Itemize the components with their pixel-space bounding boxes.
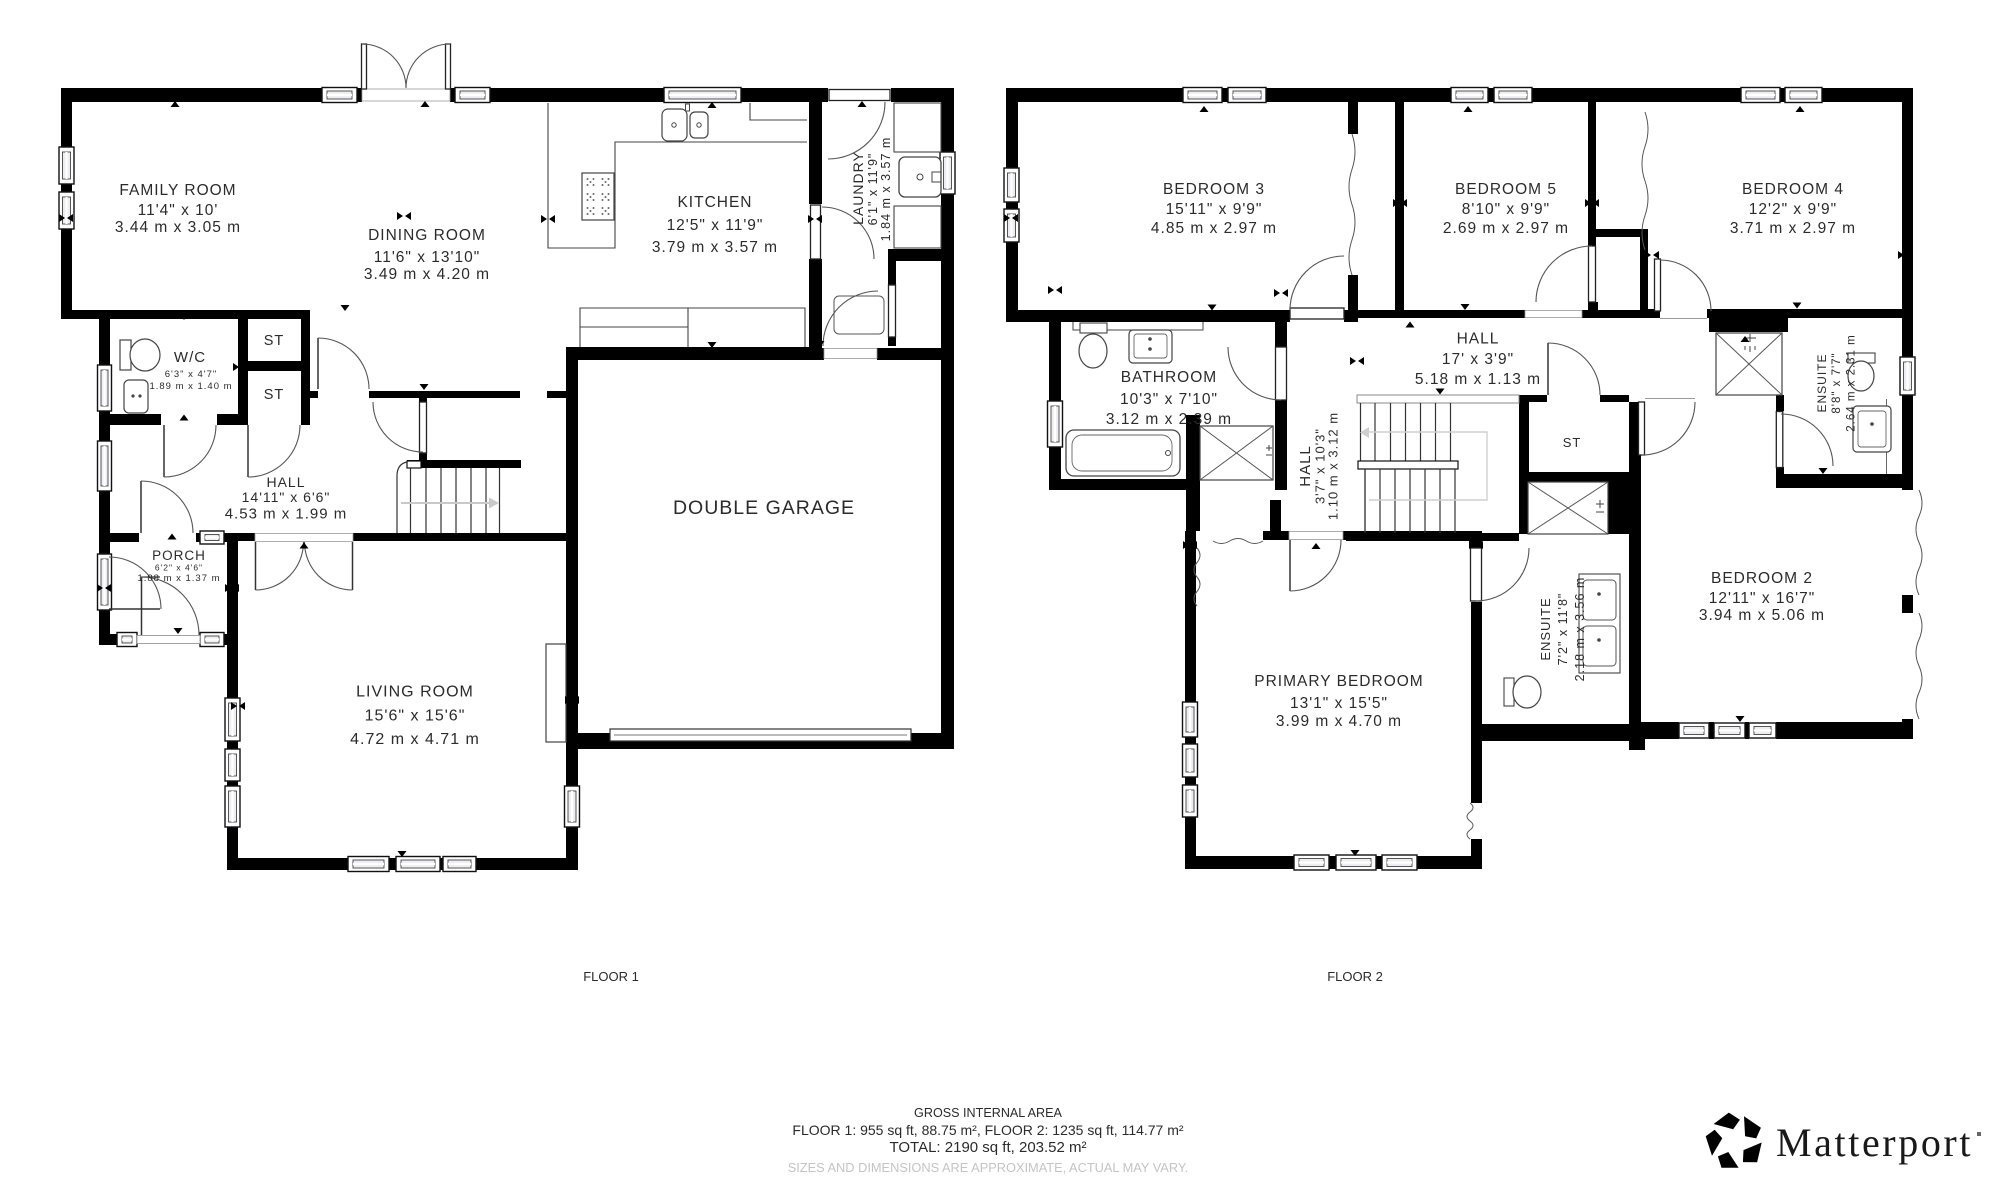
svg-text:5.18 m x 1.13 m: 5.18 m x 1.13 m — [1415, 371, 1541, 388]
svg-text:SIZES AND DIMENSIONS ARE APPRO: SIZES AND DIMENSIONS ARE APPROXIMATE, AC… — [788, 1160, 1189, 1175]
svg-text:6'1" x 11'9": 6'1" x 11'9" — [866, 153, 880, 226]
svg-text:BATHROOM: BATHROOM — [1121, 369, 1217, 386]
svg-text:10'3" x 7'10": 10'3" x 7'10" — [1120, 391, 1218, 408]
svg-text:LIVING ROOM: LIVING ROOM — [356, 684, 474, 701]
svg-text:HALL: HALL — [1297, 445, 1314, 487]
svg-text:W/C: W/C — [174, 349, 206, 366]
svg-text:HALL: HALL — [1457, 331, 1500, 348]
svg-text:BEDROOM 5: BEDROOM 5 — [1455, 181, 1557, 198]
svg-text:4.72 m x 4.71 m: 4.72 m x 4.71 m — [350, 731, 480, 748]
svg-text:KITCHEN: KITCHEN — [677, 194, 752, 211]
svg-text:1.89 m x 1.40 m: 1.89 m x 1.40 m — [149, 381, 232, 392]
svg-text:4.53 m x 1.99 m: 4.53 m x 1.99 m — [225, 506, 348, 523]
svg-text:15'11" x 9'9": 15'11" x 9'9" — [1166, 201, 1263, 218]
svg-text:ST: ST — [264, 387, 285, 403]
svg-text:13'1" x 15'5": 13'1" x 15'5" — [1290, 695, 1388, 712]
svg-text:BEDROOM 2: BEDROOM 2 — [1711, 570, 1813, 587]
svg-text:FLOOR 1: FLOOR 1 — [583, 969, 639, 984]
svg-text:ST: ST — [1563, 435, 1582, 450]
svg-text:2.18 m x 3.56 m: 2.18 m x 3.56 m — [1573, 577, 1587, 682]
svg-text:PRIMARY BEDROOM: PRIMARY BEDROOM — [1254, 673, 1423, 690]
svg-text:6'2" x 4'6": 6'2" x 4'6" — [155, 563, 203, 573]
svg-text:2.64 m x 2.31 m: 2.64 m x 2.31 m — [1846, 334, 1858, 431]
svg-text:ENSUITE: ENSUITE — [1815, 353, 1829, 412]
svg-text:BEDROOM 4: BEDROOM 4 — [1742, 181, 1844, 198]
svg-text:GROSS INTERNAL AREA: GROSS INTERNAL AREA — [914, 1106, 1062, 1120]
svg-text:BEDROOM 3: BEDROOM 3 — [1163, 181, 1265, 198]
svg-text:12'11" x 16'7": 12'11" x 16'7" — [1709, 590, 1815, 607]
svg-text:DOUBLE GARAGE: DOUBLE GARAGE — [673, 497, 855, 519]
svg-text:TOTAL: 2190 sq ft, 203.52 m²: TOTAL: 2190 sq ft, 203.52 m² — [889, 1139, 1086, 1156]
svg-text:4.85 m x 2.97 m: 4.85 m x 2.97 m — [1151, 220, 1277, 237]
svg-text:ST: ST — [264, 333, 285, 349]
svg-text:3.71 m x 2.97 m: 3.71 m x 2.97 m — [1730, 220, 1856, 237]
svg-text:8'10" x 9'9": 8'10" x 9'9" — [1462, 201, 1550, 218]
svg-text:3.79 m x 3.57 m: 3.79 m x 3.57 m — [652, 239, 778, 256]
svg-text:11'4" x 10': 11'4" x 10' — [138, 202, 219, 219]
svg-text:FAMILY ROOM: FAMILY ROOM — [119, 182, 236, 199]
svg-text:FLOOR 2: FLOOR 2 — [1327, 969, 1383, 984]
svg-text:3.49 m x 4.20 m: 3.49 m x 4.20 m — [364, 266, 490, 283]
svg-text:8'8" x 7'7": 8'8" x 7'7" — [1831, 352, 1843, 413]
svg-text:7'2" x 11'8": 7'2" x 11'8" — [1556, 593, 1570, 666]
svg-text:3.99 m x 4.70 m: 3.99 m x 4.70 m — [1276, 713, 1402, 730]
svg-text:HALL: HALL — [266, 474, 305, 490]
svg-text:1.10 m x 3.12 m: 1.10 m x 3.12 m — [1326, 412, 1341, 520]
svg-text:12'2" x 9'9": 12'2" x 9'9" — [1749, 201, 1837, 218]
svg-text:11'6" x 13'10": 11'6" x 13'10" — [374, 249, 480, 266]
svg-text:DINING ROOM: DINING ROOM — [368, 227, 486, 244]
svg-text:17' x 3'9": 17' x 3'9" — [1442, 351, 1514, 368]
svg-text:3.12 m x 2.39 m: 3.12 m x 2.39 m — [1106, 411, 1232, 428]
svg-text:ENSUITE: ENSUITE — [1538, 597, 1553, 660]
svg-text:6'3" x 4'7": 6'3" x 4'7" — [165, 369, 218, 380]
svg-text:1.88 m x 1.37 m: 1.88 m x 1.37 m — [137, 573, 220, 584]
svg-text:14'11" x 6'6": 14'11" x 6'6" — [242, 489, 331, 505]
svg-text:Matterport: Matterport — [1776, 1120, 1973, 1165]
svg-text:12'5" x 11'9": 12'5" x 11'9" — [667, 217, 764, 234]
svg-text:2.69 m x 2.97 m: 2.69 m x 2.97 m — [1443, 220, 1569, 237]
svg-text:FLOOR 1: 955 sq ft, 88.75 m²,: FLOOR 1: 955 sq ft, 88.75 m², FLOOR 2: 1… — [792, 1122, 1183, 1138]
svg-text:3.94 m x 5.06 m: 3.94 m x 5.06 m — [1699, 607, 1825, 624]
svg-text:LAUNDRY: LAUNDRY — [850, 151, 866, 225]
svg-text:15'6" x 15'6": 15'6" x 15'6" — [365, 708, 466, 725]
svg-text:PORCH: PORCH — [152, 548, 206, 563]
svg-text:3.44 m x 3.05 m: 3.44 m x 3.05 m — [115, 219, 241, 236]
svg-text:1.84 m x 3.57 m: 1.84 m x 3.57 m — [879, 137, 893, 242]
